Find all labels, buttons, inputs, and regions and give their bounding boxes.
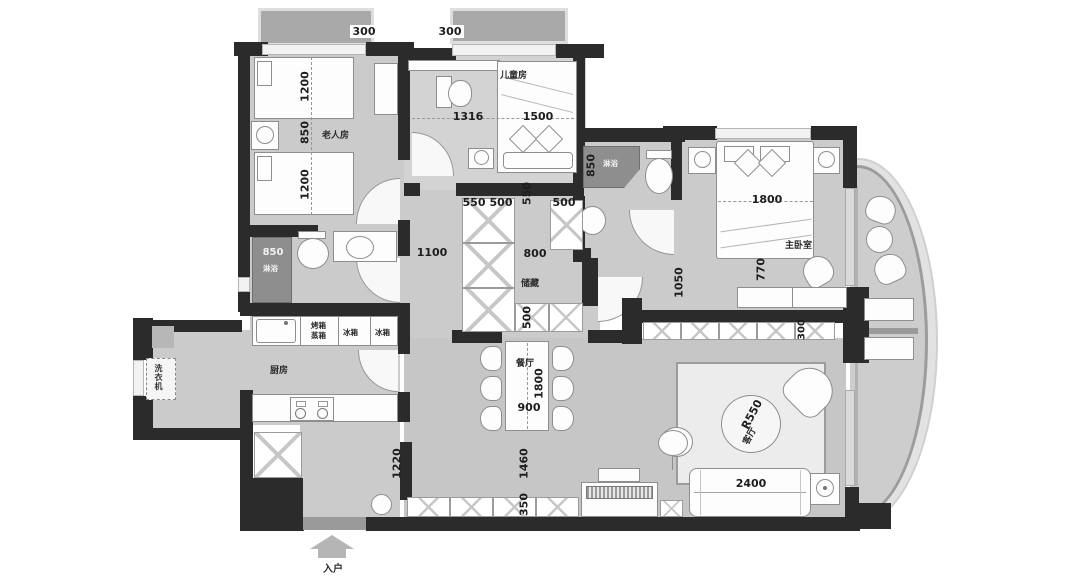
dining-chair — [480, 406, 502, 431]
dim-hall-kitchen: 1220 — [391, 434, 404, 494]
floor-plan: 300 300 1200 850 1200 老人房 儿童房 1316 1500 … — [0, 0, 1074, 576]
dim-storage-c: 500 — [551, 196, 577, 209]
dim-bath-left: 850 — [258, 247, 288, 258]
tv-wall-cabinet — [757, 322, 795, 340]
basin — [346, 236, 374, 259]
wall-segment — [582, 258, 598, 306]
lamp-icon — [474, 150, 489, 165]
window — [238, 277, 250, 292]
label-shower-left: 淋浴 — [263, 263, 278, 274]
dim-master-hall: 1050 — [673, 253, 686, 313]
burner-icon — [318, 401, 328, 407]
kids-desk-counter — [408, 60, 500, 71]
counter-divider — [300, 316, 301, 346]
dining-chair — [480, 376, 502, 401]
pantry-cabinet — [254, 432, 302, 478]
wall-segment — [366, 517, 860, 531]
wall-segment — [240, 517, 304, 531]
shoe-cabinet — [407, 497, 450, 517]
label-shower-top: 淋浴 — [603, 158, 618, 169]
wall-segment — [240, 303, 402, 316]
floor-lamp — [658, 430, 688, 456]
dim-master-cabinet: 300 — [797, 300, 808, 360]
sofa-arm-line — [700, 470, 701, 515]
tv-wall-cabinet — [719, 322, 757, 340]
laundry-shelf — [152, 326, 174, 348]
lamp-icon — [256, 126, 274, 144]
room-label-kitchen: 厨房 — [270, 363, 288, 376]
burner-icon — [296, 401, 306, 407]
elder-wardrobe — [374, 63, 398, 115]
window — [452, 44, 556, 56]
window — [262, 44, 366, 55]
entrance-arrow-stem — [318, 549, 346, 558]
faucet-icon — [284, 321, 288, 325]
dining-chair — [480, 346, 502, 371]
wall-segment — [588, 330, 624, 343]
lamp-icon — [818, 151, 835, 168]
sink — [579, 206, 606, 235]
wall-segment — [150, 428, 242, 440]
label-oven-2: 蒸箱 — [311, 330, 326, 341]
closet-cell — [462, 288, 515, 332]
kids-chair — [448, 80, 472, 107]
wall-segment — [398, 220, 410, 256]
entry-stool — [371, 494, 392, 515]
toilet-bowl — [297, 238, 329, 269]
wall-segment — [398, 392, 410, 422]
dim-bay-left: 300 — [350, 25, 378, 38]
floor-lamp-stem — [672, 456, 673, 470]
pillow — [257, 61, 272, 86]
dim-storage-b: 500 — [488, 196, 514, 209]
dim-elder-bed-bottom: 1200 — [299, 155, 312, 215]
dim-sofa: 2400 — [732, 477, 770, 490]
dim-shoe-depth: 350 — [518, 475, 531, 535]
wall-segment — [238, 42, 250, 277]
shoe-cabinet — [536, 497, 579, 517]
burner-icon — [317, 408, 328, 419]
balcony-window-master — [845, 188, 855, 286]
room-label-kids: 儿童房 — [500, 68, 527, 81]
room-label-elder: 老人房 — [322, 128, 349, 141]
entrance-mat — [303, 517, 366, 530]
tv-screen — [586, 486, 653, 499]
lamp-icon — [694, 151, 711, 168]
dining-chair — [552, 376, 574, 401]
room-label-dining: 餐厅 — [516, 356, 534, 369]
wall-segment — [663, 126, 717, 140]
dim-elder-middle: 850 — [299, 103, 312, 163]
closet-cell — [462, 243, 515, 288]
balcony-slider-living — [845, 390, 855, 486]
dim-dining-width: 900 — [514, 401, 544, 414]
sofa-arm-line — [800, 470, 801, 515]
dim-storage-a: 550 — [461, 196, 487, 209]
balcony-bench — [864, 337, 914, 360]
closet-cell — [549, 303, 583, 332]
shoe-cabinet — [450, 497, 493, 517]
burner-icon — [295, 408, 306, 419]
kids-headboard — [503, 152, 573, 169]
toilet-bowl — [645, 158, 673, 194]
dim-bay-right: 300 — [436, 25, 464, 38]
room-label-master: 主卧室 — [785, 238, 812, 251]
label-washer: 洗衣机 — [153, 364, 164, 391]
sofa-seat-line — [694, 492, 806, 493]
dim-bath-top: 850 — [585, 136, 598, 196]
end-table — [660, 500, 683, 517]
dim-storage-side: 550 — [521, 164, 534, 224]
dining-chair — [552, 346, 574, 371]
label-fridge-right: 冰箱 — [375, 327, 390, 338]
wall-segment — [855, 503, 891, 529]
bay-window-right — [450, 8, 568, 44]
window — [133, 360, 144, 396]
wall-segment — [843, 126, 857, 188]
tv-wall-cabinet — [681, 322, 719, 340]
kitchen-sink — [256, 319, 296, 343]
table-lamp-dot — [823, 486, 827, 490]
pillow — [257, 156, 272, 181]
dim-storage-bottom: 500 — [521, 288, 534, 348]
dining-chair — [552, 406, 574, 431]
dim-storage-hall: 1100 — [414, 246, 450, 259]
label-entrance: 入户 — [323, 560, 343, 575]
tv-shelf — [598, 468, 640, 482]
window — [715, 128, 811, 139]
wall-segment — [404, 48, 456, 60]
counter-divider — [370, 316, 371, 346]
dim-kids-bed: 1500 — [520, 110, 556, 123]
dim-storage-walk: 800 — [520, 247, 550, 260]
dim-master-bed: 1800 — [748, 193, 786, 206]
tv-wall-cabinet — [643, 322, 681, 340]
balcony-table — [866, 226, 893, 253]
bench-divider — [792, 287, 793, 308]
counter-divider — [338, 316, 339, 346]
dim-kids-desk: 1316 — [450, 110, 486, 123]
entrance-arrow-head — [310, 535, 354, 549]
balcony-bench — [864, 298, 914, 321]
dim-master-clearance: 770 — [755, 240, 768, 300]
wall-segment — [404, 183, 420, 196]
label-fridge-left: 冰箱 — [343, 327, 358, 338]
